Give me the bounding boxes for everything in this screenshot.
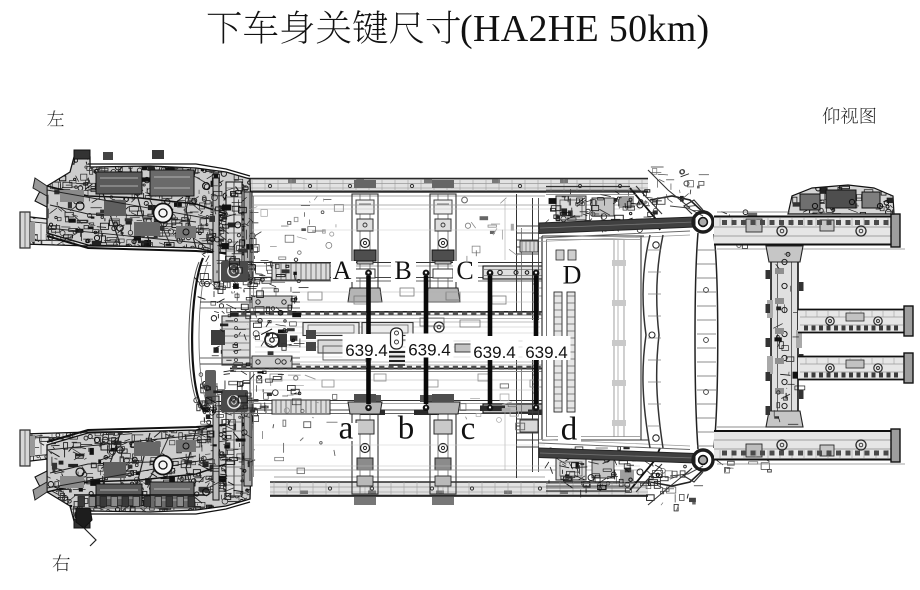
svg-text:639.4: 639.4 — [473, 343, 516, 362]
svg-text:a: a — [339, 411, 354, 447]
svg-text:c: c — [461, 411, 476, 447]
svg-text:A: A — [333, 256, 352, 285]
svg-text:C: C — [456, 256, 473, 285]
svg-text:(HA2HE 50km): (HA2HE 50km) — [460, 8, 710, 50]
svg-text:d: d — [561, 412, 578, 448]
svg-text:B: B — [394, 256, 411, 285]
svg-text:639.4: 639.4 — [525, 343, 568, 362]
svg-text:639.4: 639.4 — [408, 341, 451, 360]
svg-text:b: b — [398, 411, 415, 447]
svg-text:D: D — [563, 261, 582, 290]
svg-text:639.4: 639.4 — [345, 341, 388, 360]
